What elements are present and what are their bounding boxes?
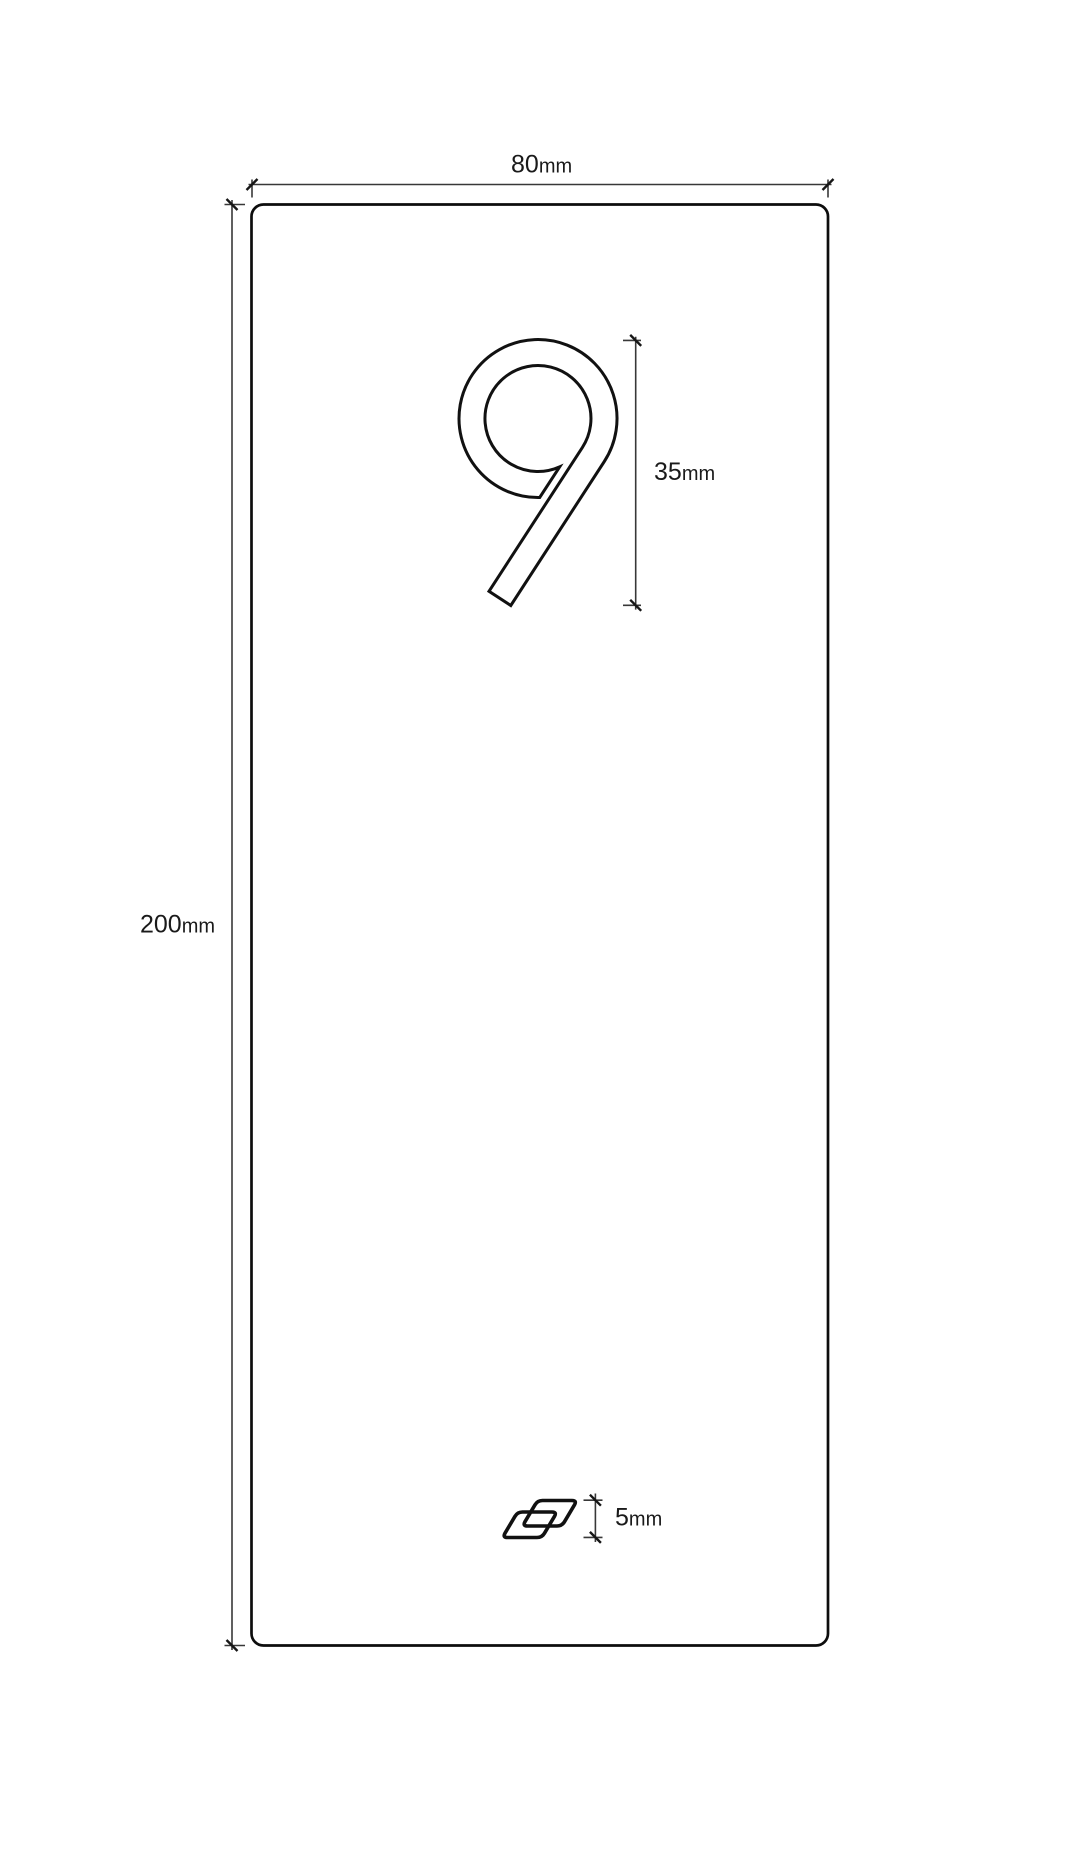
svg-text:5mm: 5mm bbox=[615, 1504, 662, 1532]
svg-text:80mm: 80mm bbox=[511, 151, 572, 179]
svg-text:200mm: 200mm bbox=[140, 911, 215, 939]
svg-text:35mm: 35mm bbox=[654, 458, 715, 486]
